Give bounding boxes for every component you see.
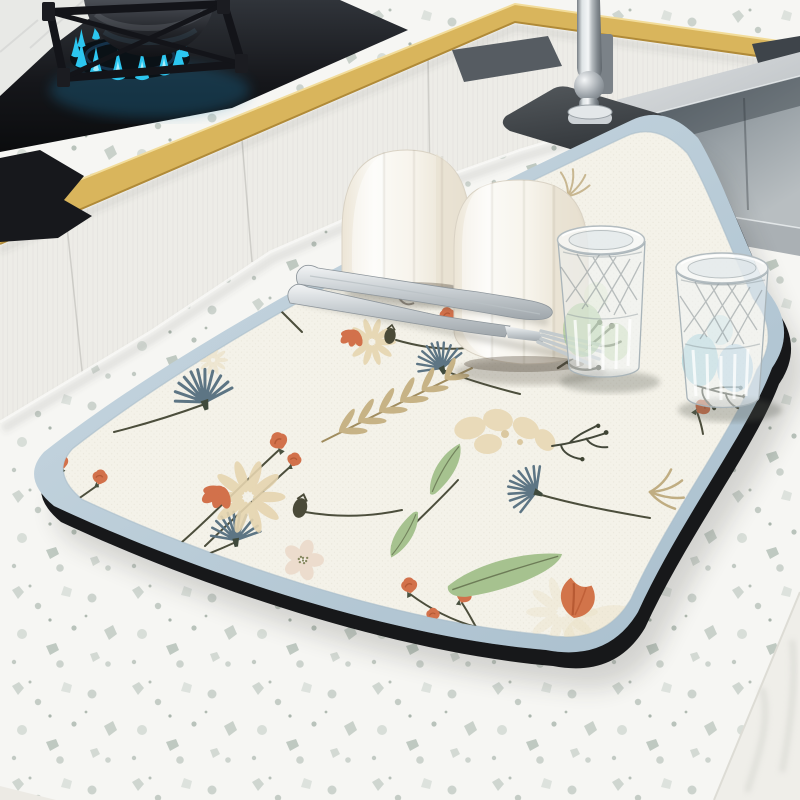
faucet-pipe (577, 0, 602, 82)
faucet-base-plate (568, 105, 612, 119)
glass-left-top-inner (569, 231, 633, 250)
kitchen-product-photo: white panelled cabinet fronts black glas… (0, 0, 800, 800)
kitchen-scene: white panelled cabinet fronts black glas… (0, 0, 800, 800)
glass-right-top-inner (688, 258, 756, 278)
crystal-glass-left: upturned cut-crystal glass with green re… (558, 226, 646, 377)
faucet-joint (574, 71, 604, 101)
crystal-glass-right: upturned cut-crystal glass with blue ref… (676, 253, 768, 408)
